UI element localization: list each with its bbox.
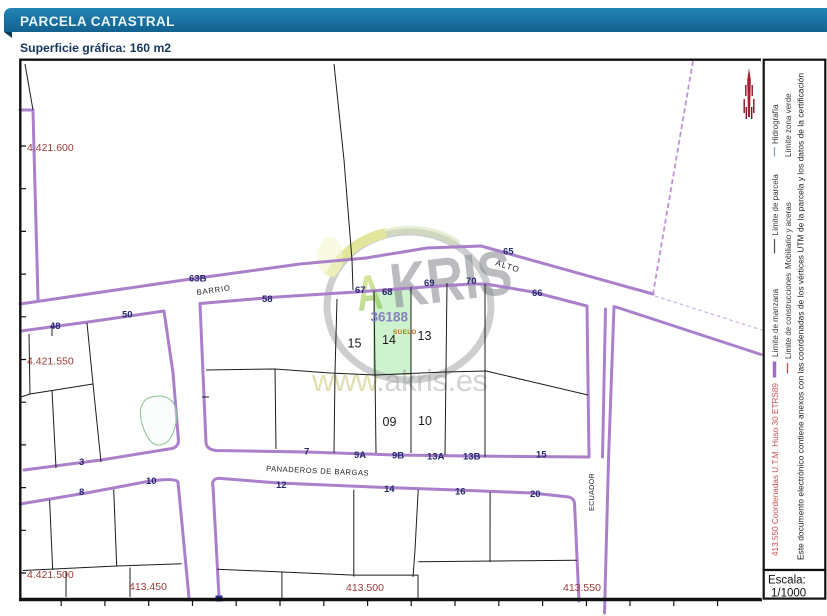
svg-text:413.500: 413.500 [346, 582, 384, 594]
svg-text:4.421.550: 4.421.550 [27, 356, 74, 368]
svg-text:13A: 13A [427, 452, 445, 463]
svg-text:4.421.600: 4.421.600 [27, 142, 74, 154]
svg-text:50: 50 [122, 310, 133, 321]
svg-text:Mobiliario y aceras: Mobiliario y aceras [784, 202, 793, 269]
svg-text:3: 3 [79, 457, 84, 468]
svg-text:12: 12 [276, 480, 287, 491]
svg-text:413.450: 413.450 [129, 581, 167, 593]
svg-text:Límite de construcciones: Límite de construcciones [784, 273, 793, 359]
svg-text:PANADEROS DE BARGAS: PANADEROS DE BARGAS [266, 464, 369, 478]
svg-text:Escala:: Escala: [768, 575, 806, 587]
svg-text:413.550 Coordenadas U.T.M. Hus: 413.550 Coordenadas U.T.M. Huso 30 ETRS8… [771, 383, 780, 556]
svg-text:15: 15 [536, 450, 547, 461]
svg-text:9A: 9A [354, 450, 366, 461]
svg-text:10: 10 [418, 414, 432, 428]
svg-text:09: 09 [383, 415, 397, 429]
svg-text:69: 69 [424, 278, 435, 289]
svg-text:20: 20 [530, 489, 541, 500]
svg-text:1/1000: 1/1000 [771, 588, 806, 600]
svg-text:9B: 9B [392, 451, 404, 462]
svg-text:13: 13 [418, 329, 432, 343]
svg-text:65: 65 [503, 247, 514, 258]
svg-text:70: 70 [466, 276, 477, 287]
svg-text:413.550: 413.550 [563, 582, 601, 594]
svg-text:67: 67 [355, 285, 366, 296]
svg-text:13B: 13B [463, 452, 481, 463]
svg-text:63B: 63B [189, 274, 207, 285]
svg-text:14: 14 [384, 484, 395, 495]
svg-text:7: 7 [304, 447, 309, 458]
svg-text:48: 48 [50, 321, 61, 332]
svg-text:16: 16 [455, 487, 466, 498]
svg-text:Este documento electrónico con: Este documento electrónico contiene anex… [796, 73, 806, 560]
svg-text:68: 68 [382, 287, 393, 298]
svg-text:Hidrografía: Hidrografía [771, 104, 780, 144]
svg-text:Límite de parcela: Límite de parcela [771, 174, 780, 236]
svg-text:8: 8 [79, 487, 84, 498]
svg-text:SUELO: SUELO [393, 329, 417, 336]
svg-text:66: 66 [532, 288, 543, 299]
svg-text:Límite zona verde: Límite zona verde [784, 93, 793, 157]
svg-text:BARRIO: BARRIO [196, 283, 231, 297]
svg-text:ECUADOR: ECUADOR [587, 473, 596, 511]
svg-text:4.421.500: 4.421.500 [27, 569, 74, 581]
svg-text:10: 10 [146, 476, 157, 487]
svg-text:15: 15 [348, 337, 362, 351]
svg-text:58: 58 [262, 294, 273, 305]
svg-text:Límite de manzana: Límite de manzana [771, 288, 780, 357]
svg-text:www.akris.es: www.akris.es [311, 363, 488, 398]
svg-text:36188: 36188 [371, 310, 409, 325]
